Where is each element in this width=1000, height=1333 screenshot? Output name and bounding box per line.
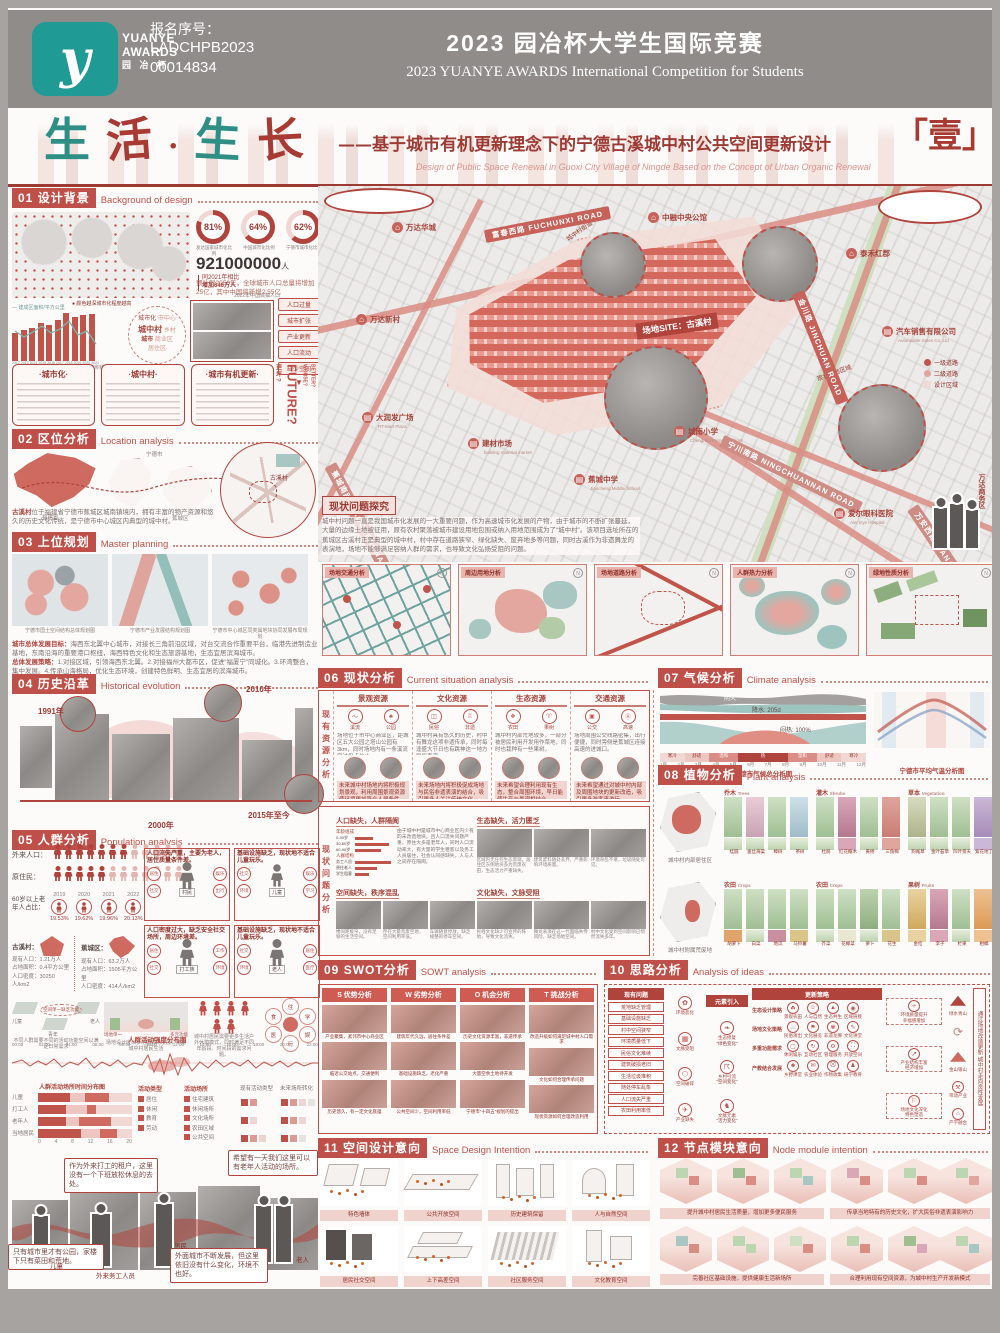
node-module — [831, 1226, 883, 1272]
inset-photo-wasteland — [838, 384, 926, 472]
site-axonometric-map: 城中村街道 现状场地区域 ⌂万达华城 富春西路 FUCHUNXI ROAD ⌂中… — [318, 186, 992, 562]
ideas-panel: 现有问题 荒地缺乏管理基础设施缺乏村中空间狭窄环境质量低下民俗文化难续建筑破损老… — [604, 984, 990, 1134]
donut-chart: 62% — [286, 210, 320, 244]
map-silhouette — [966, 510, 978, 548]
analysis-map-landuse: 周边用地分析N — [458, 564, 587, 656]
entry-serial: 报名序号： LADCHPB2023 00014834 — [150, 20, 254, 77]
flower-center — [283, 1017, 298, 1032]
guxi-inset-map: 古溪村 — [220, 442, 316, 538]
problem-population: 人口缺失，人群隔阂 年龄组成 0-30岁 30-60岁 60-90岁 人群结构 … — [336, 810, 475, 880]
module-caption: 提升城中村居民生活质量，增加更多便民服务 — [660, 1208, 824, 1219]
plant-group-fruits: 果树 Fruits 金桔 李子 杧果 柑橘 — [908, 880, 992, 947]
city-photo — [193, 303, 271, 330]
bus-stop-dot — [343, 595, 351, 603]
title-char: 生 — [193, 103, 242, 171]
leader-line — [535, 1151, 648, 1153]
leader-line — [821, 681, 988, 683]
donut-developed: 81% 发达国家城市化比例 — [196, 210, 232, 257]
competition-title-cn: 2023 园冶杯大学生国际竞赛 — [258, 24, 952, 58]
wanda-label: ⌂万达华城 — [392, 222, 436, 233]
leader-line — [810, 778, 988, 780]
landuse-public — [469, 619, 491, 639]
year-1991: 1991年 — [38, 706, 64, 717]
tag: 人口过量 — [278, 298, 320, 311]
population-number: 921000000 — [196, 254, 281, 273]
serial-label: 报名序号： — [150, 20, 254, 38]
section-11-en: Space Design Intention — [432, 1145, 530, 1158]
elderly-item: 202119.96% — [99, 892, 118, 922]
caption-text: 位于福建省宁德市蕉城区城南镇境内，拥有丰富的物产资源和悠久的历史文化传统，是宁德… — [12, 509, 214, 525]
site-outline — [641, 591, 685, 625]
competition-title-en: 2023 YUANYE AWARDS International Competi… — [258, 64, 952, 81]
future-question: 更坏? FUTURE? WORSE? BETTER? 更好? — [278, 364, 322, 426]
corridor-teal — [155, 554, 195, 626]
area-stats: 古溪村： 现有人口：1.21万人占地面积：0.4平方公里人口密度：30250人/… — [12, 936, 140, 991]
material-label: ▤建材市场 — [468, 438, 512, 449]
plant-group-shrubs: 灌木 Shrubs 杜鹃 红花檵木 黄杨 三角梅 — [816, 788, 902, 855]
column-divider — [653, 690, 654, 956]
resident-quote: 外面城市不断发展，但这里依旧没有什么变化，环境不也好。 — [170, 1248, 268, 1283]
plant-group-crops1: 农田 Crops 胡萝卜 白菜 地瓜 马铃薯 — [724, 880, 810, 947]
green-patch — [963, 609, 987, 627]
population-unit: 人 — [281, 262, 289, 271]
donut-chart: 81% — [196, 210, 230, 244]
rtmart-en: RT-Mart Plaza — [378, 424, 407, 429]
leader-line — [491, 973, 596, 975]
ningde-label: 宁德市 — [146, 450, 163, 458]
section-07-chip: 07 气候分析 — [658, 668, 742, 688]
sketch-caption: 社区服务空间 — [488, 1276, 566, 1287]
section-10-header: 10 思路分析 Analysis of ideas — [604, 960, 990, 980]
ideas-problems: 现有问题 荒地缺乏管理基础设施缺乏村中空间狭窄环境质量低下民俗文化难续建筑破损老… — [608, 988, 664, 1130]
persona-cards: 人口流失严重，主要为老人，居住质量条件差。 居住社交 村民 娱乐出行 基础设施缺… — [144, 848, 320, 998]
plan-map-1 — [12, 554, 108, 626]
chart-legend: — 建成区面积/平方公里 — [12, 304, 124, 311]
problem-exploration: 现状问题探究 城中村问题一直是我国城市化发展的一大重要问题，作为高速城市化发展的… — [322, 496, 640, 555]
analysis-map-heat: 人群热力分析N — [730, 564, 859, 656]
climate-stream-chart: 降水: 205d 闷热: 100% 阴天 寒冷 舒适 温和 热 温和 舒适 寒冷… — [660, 692, 866, 748]
strategy-label: 总体发展策略： — [12, 659, 58, 666]
module-caption: 合理利用现有空间资源，为城中村生产开发新模式 — [830, 1274, 990, 1285]
resource-landscape: 景观资源 ～溪流♣公园 场地位于市中心商业区，距城区五大公园之塔山公园有3km，… — [333, 691, 412, 801]
swot-opportunities: O 机会分析 历史文化资源丰富，非遗传承 大量空余土地待开发 宁德市“十四五”规… — [460, 988, 525, 1130]
persona-card-villager: 人口流失严重，主要为老人，居住质量条件差。 居住社交 村民 娱乐出行 — [144, 848, 230, 921]
migrants-label: 外来人口： — [12, 850, 47, 860]
sketch-service — [488, 1226, 566, 1272]
plant-groups-row2: 农田 Crops 胡萝卜 白菜 地瓜 马铃薯 农田 Crops 芥菜 花椰菜 萝… — [724, 880, 992, 947]
title-char: 活 — [104, 102, 154, 171]
urban-village-diagram: 城市化 市中心 城中村 乡村 城市 商业区 居住区 — [128, 306, 186, 364]
elderly-ratio-row: 201919.53% 202019.62% 202119.96% 202220.… — [50, 892, 143, 922]
zone-shape-2 — [660, 882, 716, 942]
poster-page: { "header":{ "logo_glyph":"y", "logo_lin… — [0, 0, 1000, 1333]
aier-en: Aier Eye Hospital — [850, 520, 885, 525]
plant-group-crops2: 农田 Crops 芥菜 花椰菜 萝卜 花生 — [816, 880, 902, 947]
landuse-water — [543, 581, 577, 609]
primary-school-label: ▤城南小学 — [674, 426, 718, 437]
worse-label: WORSE? — [302, 364, 308, 426]
node-module — [831, 1158, 883, 1204]
swot-panel: S 优势分析 产业聚集，紧邻市中心商业区 临近公交站点，交通便利 历史悠久，有一… — [318, 984, 598, 1134]
section-03-en: Master planning — [101, 539, 169, 552]
elderly-item: 201919.53% — [50, 892, 69, 922]
problem-culture: 文化缺失，文脉受阻 民俗文化缺少可宣传的阵地，导致文化流失。 舞龙表演在这一代面… — [477, 882, 646, 952]
auto-en: Automobile Sales Co.,Ltd — [898, 338, 949, 343]
vision-tail: 通过场地改造更新 城中村走向良性发展 — [973, 988, 986, 1130]
worker-label: 外来务工人员 — [96, 1270, 135, 1280]
intensity-title: 人群活动强度分布图 — [128, 1034, 187, 1044]
title-dot: · — [168, 129, 178, 164]
donut-ningde: 62% 宁德市城市化比例 — [286, 210, 322, 257]
svg-text:降水: 205d: 降水: 205d — [752, 706, 781, 714]
heat-blob — [755, 591, 819, 635]
section-03-chip: 03 上位规划 — [12, 532, 96, 552]
traffic-roads — [323, 565, 450, 655]
donut-chart: 64% — [241, 210, 275, 244]
zone-label-1: 城中村内部居住区 — [660, 856, 720, 864]
node-module — [717, 1158, 769, 1204]
elder-silhouette — [276, 1206, 291, 1262]
zone-shape-1 — [660, 792, 716, 852]
elderly-item: 202019.62% — [75, 892, 94, 922]
concept-box-village: ·城中村· — [101, 364, 184, 426]
section-02-en: Location analysis — [101, 436, 174, 449]
leader-line — [198, 201, 318, 203]
plant-group-trees: 乔木 Trees 桂圆 垂丝海棠 樟树 茶树 — [724, 788, 810, 855]
timeline-baseline — [20, 800, 312, 802]
section-09-header: 09 SWOT分析 SOWT analysis — [318, 960, 596, 980]
problem-vlabel: 现状问题分析 — [319, 807, 333, 955]
poster-title: 生 活 · 生 长 — [44, 104, 303, 170]
goal-label: 城市总体发展目标： — [12, 641, 71, 648]
section-04-header: 04 历史沿革 Historical evolution — [12, 674, 318, 694]
caption-highlight: 古溪村 — [12, 509, 32, 516]
node-module — [888, 1226, 940, 1272]
poster-sheet: y YUANYE AWARDS 园 冶 杯 报名序号： LADCHPB2023 … — [8, 8, 992, 1289]
residents-label: 原住民： — [12, 872, 40, 882]
material-en: building material market — [484, 450, 532, 455]
section-08-en: Plant analysis — [747, 772, 806, 785]
inset-photo-aerial — [742, 226, 818, 302]
node-module — [774, 1158, 826, 1204]
node-module — [717, 1226, 769, 1272]
donut-label: 宁德市城市化比例 — [286, 245, 322, 251]
heat-blob — [739, 575, 765, 597]
ideas-issues: ✿环境恶化 ▦文脉受阻 ⬡空间破碎 ✈产业缺失 — [668, 988, 702, 1130]
section-07-en: Climate analysis — [747, 675, 816, 688]
section-01-en: Background of design — [101, 195, 193, 208]
city-photos — [190, 300, 274, 362]
cycle-icon: ⟳ — [953, 1025, 963, 1039]
analysis-map-traffic: 场地交通分析N — [322, 564, 451, 656]
placeholder-text — [196, 383, 269, 421]
persona-card-child: 基础设施缺乏，现状地不适合儿童玩乐。 社交环境 儿童 娱乐学习 — [234, 848, 320, 921]
section-08-header: 08 植物分析 Plant analysis — [658, 765, 988, 785]
history-photo — [20, 726, 52, 788]
resource-vlabel: 现有资源分析 — [319, 691, 333, 801]
persona-card-elder: 基础设施缺乏，现状地不适合儿童玩乐。 社交环境 老人 居住医疗 — [234, 925, 320, 998]
plan-map-3 — [212, 554, 308, 626]
plan-caption-2: 宁德市产业发展结构规划图 — [112, 628, 208, 634]
sketch-caption: 文化教育空间 — [572, 1276, 650, 1287]
elderly-item: 202220.13% — [124, 892, 143, 922]
leader-line — [173, 545, 318, 547]
concept-box-renewal: ·城市有机更新· — [191, 364, 274, 426]
temperature-chart: 宁德市平均气温分析图 — [874, 692, 990, 748]
section-04-chip: 04 历史沿革 — [12, 674, 96, 694]
node-module — [660, 1226, 712, 1272]
future-label: FUTURE? — [285, 364, 300, 426]
guxi-shape — [40, 936, 64, 956]
yuanye-logo-icon: y — [32, 22, 118, 96]
leader-line — [188, 843, 318, 845]
taihe-label: ⌂泰禾红郡 — [846, 248, 890, 259]
ideas-futures: +环境质量提升幸福感增加 ↗产业结构丰富经济增加 ⚐场地文化深化特色塑造 — [886, 988, 942, 1130]
heat-blob — [821, 579, 851, 605]
section-08-chip: 08 植物分析 — [658, 765, 742, 785]
resource-culture: 文化资源 ◫民俗♖非遗 城中村具有悠久的历史，村中有舞龙这项非遗传承，同时每逢盛… — [412, 691, 491, 801]
leader-line — [179, 442, 318, 444]
serial-number-2: 00014834 — [150, 58, 254, 78]
section-06-en: Current situation analysis — [407, 675, 514, 688]
map-silhouette — [934, 508, 947, 548]
year-2015: 2015年至今 — [248, 810, 290, 821]
forecast-text: 预计到2050年，全球城市人口总量将增加25亿，其中中国将新增2.55亿 — [196, 280, 318, 298]
map-legend: 一级道路 二级道路 设计区域 — [924, 358, 958, 391]
better-label: BETTER? — [310, 364, 316, 426]
place-time-chart: 人群活动场所时间分布图 儿童 打工人 老年人 当地居民 048121620 — [12, 1082, 132, 1145]
section-06-header: 06 现状分析 Current situation analysis — [318, 668, 648, 688]
bus-stop-dot — [393, 621, 401, 629]
heat-blob — [817, 625, 847, 649]
platform — [42, 1018, 68, 1030]
wandaxincun-label: ⌂万达新村 — [356, 314, 400, 325]
section-12-en: Node module intention — [773, 1145, 868, 1158]
node-module — [774, 1226, 826, 1272]
plan-map-2 — [112, 554, 208, 626]
sketch-open-space — [404, 1160, 482, 1206]
corridor-red — [116, 554, 157, 626]
analysis-map-roads: 场地道路分析N — [594, 564, 723, 656]
sketch-caption: 特色墙体 — [320, 1210, 398, 1221]
sketch-caption: 上下高差空间 — [404, 1276, 482, 1287]
section-10-en: Analysis of ideas — [693, 967, 764, 980]
poster-subtitle-en: Design of Public Space Renewal in Guoxi … — [416, 162, 916, 172]
sketch-caption: 居民社交空间 — [320, 1276, 398, 1287]
section-01-chip: 01 设计背景 — [12, 188, 96, 208]
activity-place-legend: 活动场所 住宅建筑 休闲场所 文化场所 农田区域 公共空间 — [184, 1084, 236, 1143]
section-10-chip: 10 思路分析 — [604, 960, 688, 980]
problem-panel: 现状问题分析 人口缺失，人群隔阂 年龄组成 0-30岁 30-60岁 60-90… — [318, 806, 650, 956]
problem-title: 现状问题探究 — [322, 496, 396, 515]
section-11-chip: 11 空间设计意向 — [318, 1138, 427, 1158]
section-09-chip: 09 SWOT分析 — [318, 960, 416, 980]
bus-stop-dot — [423, 585, 431, 593]
node-module — [660, 1158, 712, 1204]
sketch-social — [320, 1226, 398, 1272]
sketch-wall — [320, 1160, 398, 1206]
inset-site-outline — [249, 481, 277, 504]
history-photo — [173, 718, 239, 802]
site-outline — [915, 595, 959, 625]
jiaocheng-stats: 蕉城区： 现有人口：63.2万人占地面积：1505平方公里人口密度：414人/k… — [81, 936, 140, 991]
jiaocheng-shape — [109, 936, 135, 958]
serial-number-1: LADCHPB2023 — [150, 38, 254, 58]
landuse-green — [539, 617, 565, 639]
node-module — [888, 1158, 940, 1204]
section-09-en: SOWT analysis — [421, 967, 486, 980]
sketch-caption: 公共开放空间 — [404, 1210, 482, 1221]
development-goal: 城市总体发展目标：海西东北翼中心城市，对接长三角前沿区域，对台交流合作重要平台，… — [12, 640, 318, 658]
module-caption: 传承当地特有的历史文化，扩大民俗非遗表演影响力 — [830, 1208, 990, 1219]
title-char: 长 — [255, 103, 304, 171]
auto-label: ▤汽车销售有限公司 — [882, 326, 956, 337]
header-band: y YUANYE AWARDS 园 冶 杯 报名序号： LADCHPB2023 … — [8, 10, 992, 108]
problem-space: 空间缺失，秩序混乱 楼间距极窄，没有足够的生活空间。 存在大量荒废空地，空间利用… — [336, 882, 475, 952]
child-label: 儿童 — [50, 1260, 63, 1270]
platform — [12, 1002, 38, 1014]
elderly-ratio-label: 60岁以上老年人占比： — [12, 896, 46, 913]
tag: 人口流动 — [278, 346, 320, 359]
leader-line — [518, 681, 648, 683]
resource-panel: 现有资源分析 景观资源 ～溪流♣公园 场地位于市中心商业区，距城区五大公园之塔山… — [318, 690, 650, 802]
ideas-elements: 元素引入 ❧生态修复“绿色变化” ☈乡村引流“空间变化” ♞文脉元素“活力变化” — [706, 988, 748, 1130]
section-04-en: Historical evolution — [101, 681, 181, 694]
cloud-decoration — [324, 188, 434, 214]
swot-threats: T 挑战分析 改造升级如何满足城中村人口需求 文化如何合理传承问题 现状资源如何… — [529, 988, 594, 1130]
ideas-vision: 绿水青山 ⟳ 金山银山 ⚒带动产业 ⌂产学融合 通过场地改造更新 城中村走向良性… — [946, 988, 986, 1130]
concept-box-urbanization: ·城市化· — [12, 364, 95, 426]
wanda-biz-label: 万达商务区 — [976, 474, 986, 509]
world-urbanization-map — [12, 212, 190, 298]
problem-ecology: 生态缺失，活力匮乏 区域内无任何生态景观，居住区东侧地块多为荒废农田，生态活力严… — [477, 810, 646, 880]
plant-groups-row1: 乔木 Trees 桂圆 垂丝海棠 樟树 茶树 灌木 Shrubs 杜鹃 红花檵木… — [724, 788, 992, 855]
section-02-chip: 02 区位分析 — [12, 429, 96, 449]
module-caption: 完善社区基础设施，提供健康生活新场所 — [660, 1274, 824, 1285]
strategy-text: 1.对接区域，引领海西东北翼。2.对接福州大都市区，促进“福厦宁”同城化。3.环… — [12, 659, 312, 675]
sketch-historic — [488, 1160, 566, 1206]
tag: 城市扩张 — [278, 314, 320, 327]
sketch-level — [404, 1226, 482, 1272]
svg-text:闷热: 100%: 闷热: 100% — [780, 726, 811, 734]
resource-traffic: 交通资源 ▣公交Ⓐ高速 场地周围公交线路密集，出行便捷，同时旁侧是蕉城区连接高速… — [570, 691, 649, 801]
svg-text:阴天: 阴天 — [724, 694, 736, 702]
builtup-area-chart: — 建成区面积/平方公里 201220132014201520162017201… — [12, 304, 124, 371]
middle-en: Jiaocheng Middle School — [590, 486, 640, 491]
sketch-caption: 历史建筑保留 — [488, 1210, 566, 1221]
node-module — [940, 1226, 992, 1272]
history-circle-photo — [60, 696, 96, 732]
middle-school-label: ▤蕉城中学 — [574, 474, 618, 485]
zone-label-2: 城中村附属荒废地 — [660, 946, 720, 954]
section-03-header: 03 上位规划 Master planning — [12, 532, 318, 552]
ideas-strategies: 更新策略 生态设计策略 ☘景观农田 ☺人与自然 ▲生态共生 ◉区域链接 场地文化… — [752, 988, 882, 1130]
urbanization-donuts: 81% 发达国家城市化比例 64% 中国城市化比例 62% 宁德市城市化比例 — [196, 210, 322, 257]
village-photo — [193, 332, 271, 359]
tag: 产业更新 — [278, 330, 320, 343]
section-11-header: 11 空间设计意向 Space Design Intention — [318, 1138, 648, 1158]
plant-group-herbs: 草本 Vegetation 狗尾草 金叶苔草 凹叶景天 紫花地丁 — [908, 788, 992, 855]
donut-label: 中国城市化比例 — [241, 245, 277, 251]
problem-grid: 人口缺失，人群隔阂 年龄组成 0-30岁 30-60岁 60-90岁 人群结构 … — [333, 807, 649, 955]
section-01-header: 01 设计背景 Background of design — [12, 188, 318, 208]
section-12-chip: 12 节点模块意向 — [658, 1138, 768, 1158]
comfort-band: 寒冷 舒适 温和 热 温和 舒适 寒冷 — [660, 753, 866, 762]
inset-water — [276, 454, 300, 467]
elder-quote: 希望有一天我们这里可以有老年人活动的场所。 — [228, 1150, 318, 1176]
line-overlay — [12, 311, 102, 361]
sheet-number: 「壹」 — [894, 108, 992, 157]
aier-label: ▤爱尔眼科医院 — [834, 508, 893, 519]
section-07-header: 07 气候分析 Climate analysis — [658, 668, 988, 688]
persona-card-worker: 人口密度过大，缺乏安全社交场所，周边环境差。 居住社交 打工族 工作环境 — [144, 925, 230, 998]
leader-line — [769, 973, 990, 975]
green-patch — [881, 623, 915, 639]
section-06-chip: 06 现状分析 — [318, 668, 402, 688]
donut-china: 64% 中国城市化比例 — [241, 210, 277, 257]
guxi-stats: 古溪村： 现有人口：1.21万人占地面积：0.4平方公里人口密度：30250人/… — [12, 936, 75, 991]
elder-label: 老人 — [296, 1254, 309, 1264]
section-12-header: 12 节点模块意向 Node module intention — [658, 1138, 988, 1158]
problem-text: 城中村问题一直是我国城市化发展的一大重要问题，作为高速城市化发展的产物，由于城市… — [322, 517, 640, 555]
location-caption: 古溪村位于福建省宁德市蕉城区城南镇境内，拥有丰富的物产资源和悠久的历史文化传统，… — [12, 508, 214, 526]
intensity-chart — [12, 1050, 318, 1076]
history-photo — [112, 734, 170, 800]
worse-cn: 更坏? — [274, 364, 283, 426]
cloud-decoration — [878, 190, 982, 224]
title-char: 生 — [44, 113, 90, 167]
inset-photo-street — [580, 232, 646, 298]
sketch-culture — [572, 1226, 650, 1272]
resident-label: 居民 — [174, 1240, 187, 1250]
map-silhouette — [950, 504, 963, 548]
swot-weaknesses: W 劣势分析 建筑年代久远，居住条件差 基础设施缺乏，老化严重 公共空间少，空间… — [391, 988, 456, 1130]
zhongrong-label: ⌂中融中央公馆 — [648, 212, 707, 223]
placeholder-text — [106, 383, 179, 421]
concept-boxes: ·城市化· ·城中村· ·城市有机更新· — [12, 364, 274, 426]
analysis-map-green: 绿地性质分析N — [866, 564, 992, 656]
activity-type-legend: 活动类型 居住 休闲 教育 劳动 — [138, 1084, 182, 1133]
plan-caption-3: 宁德市中心城区同类属地块协同发展布局规划 — [212, 628, 308, 641]
resource-ecology: 生态资源 ❖农田♈果树 城中村内部荒地较多，一部分被居民利用开发用作菜地，同时也… — [491, 691, 570, 801]
plan-caption-1: 宁德市国土空间结构总体规划图 — [12, 628, 108, 634]
history-circle-photo — [204, 684, 242, 722]
placeholder-text — [17, 383, 90, 421]
rtmart-label: ▤大润发广场 — [362, 412, 414, 423]
green-patch — [873, 581, 902, 603]
sketch-caption: 人与自然空间 — [572, 1210, 650, 1221]
swot-strengths: S 优势分析 产业聚集，紧邻市中心商业区 临近公交站点，交通便利 历史悠久，有一… — [322, 988, 387, 1130]
worker-quote: 作为外来打工的租户，这里没有一个下班放松休息的去处。 — [64, 1158, 158, 1193]
sketch-nature — [572, 1160, 650, 1206]
year-2010: 2010年 — [246, 684, 272, 695]
poster-subtitle-cn: ——基于城市有机更新理念下的宁德古溪城中村公共空间更新设计 — [338, 130, 878, 155]
node-module — [940, 1158, 992, 1204]
guxi-label: 古溪村 — [270, 473, 288, 482]
leader-line — [873, 1151, 988, 1153]
